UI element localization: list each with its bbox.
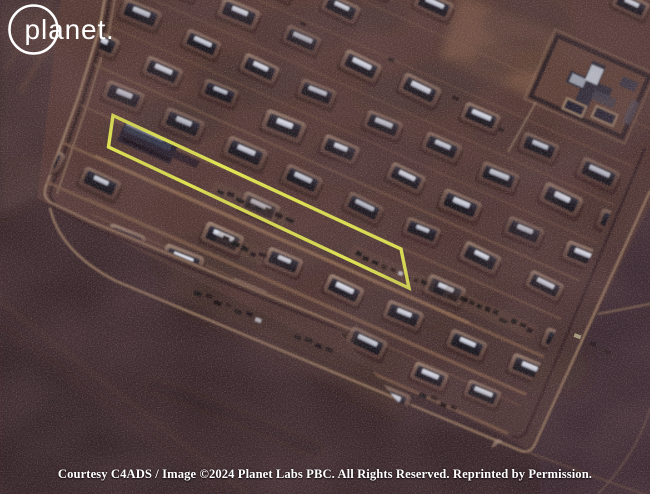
svg-text:planet.: planet. (25, 14, 115, 45)
